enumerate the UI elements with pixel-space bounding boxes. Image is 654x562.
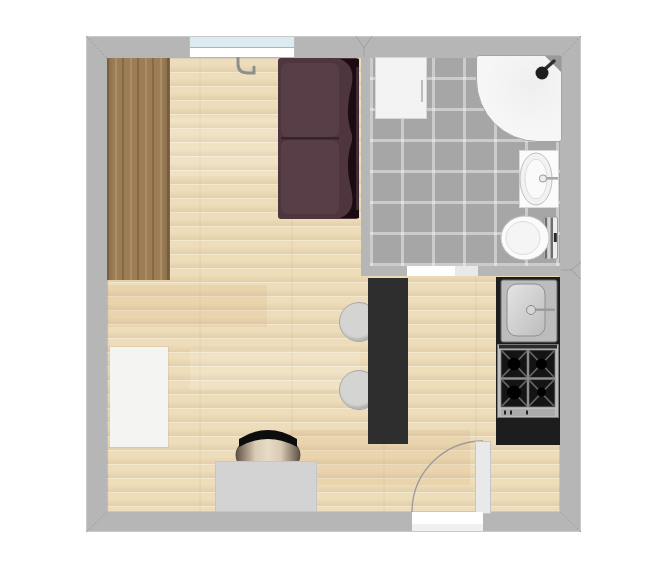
shower-head-icon xyxy=(531,56,561,86)
desk[interactable] xyxy=(215,461,317,512)
sofa-cushion xyxy=(281,63,339,137)
entry-door-opening[interactable] xyxy=(412,512,483,532)
toilet-cistern-stripe xyxy=(551,218,554,259)
wardrobe[interactable] xyxy=(107,58,170,280)
washing-machine[interactable] xyxy=(375,57,427,119)
sofa-cushion xyxy=(281,140,339,214)
shower-head xyxy=(536,67,549,80)
partition-wall[interactable] xyxy=(368,278,408,444)
floor-plank-shade xyxy=(190,350,360,390)
area-rug[interactable] xyxy=(110,347,168,447)
shower-arm xyxy=(545,61,554,69)
floorplan-canvas xyxy=(0,0,654,562)
window[interactable] xyxy=(189,36,295,57)
bathroom-door-leaf[interactable] xyxy=(455,266,478,276)
stove-burner xyxy=(536,359,547,370)
stove-knob xyxy=(526,411,528,415)
stove-burner xyxy=(508,358,521,371)
sofa[interactable] xyxy=(278,57,359,220)
stove-back-edge xyxy=(499,345,557,349)
stove-knob xyxy=(504,411,506,415)
toilet-flush-button xyxy=(554,233,557,242)
sink-faucet xyxy=(527,306,536,315)
sink-faucet xyxy=(539,175,546,182)
sofa-back-highlight xyxy=(356,67,359,210)
window-glass xyxy=(190,37,294,48)
gas-stove[interactable] xyxy=(497,344,559,418)
swing-arc-path xyxy=(412,441,483,512)
hook-curve xyxy=(238,57,254,73)
sink-faucet-stem xyxy=(534,309,555,311)
entry-door-sill xyxy=(412,524,483,532)
toilet-seat xyxy=(506,222,540,255)
toilet[interactable] xyxy=(499,213,561,263)
wall-hook[interactable] xyxy=(232,56,262,81)
bathroom-door-opening[interactable] xyxy=(407,266,455,276)
kitchen-sink[interactable] xyxy=(500,279,558,343)
stove-burner xyxy=(507,386,521,400)
bathroom-sink[interactable] xyxy=(519,149,559,209)
entry-door-leaf[interactable] xyxy=(475,441,491,514)
bathroom-wall-left xyxy=(361,58,370,276)
sofa-cushion-seam xyxy=(281,137,339,140)
stove-knob xyxy=(510,411,512,415)
washing-machine-hinge xyxy=(421,80,423,102)
floor-plank-shade xyxy=(107,285,267,327)
stove-burner xyxy=(537,388,546,397)
